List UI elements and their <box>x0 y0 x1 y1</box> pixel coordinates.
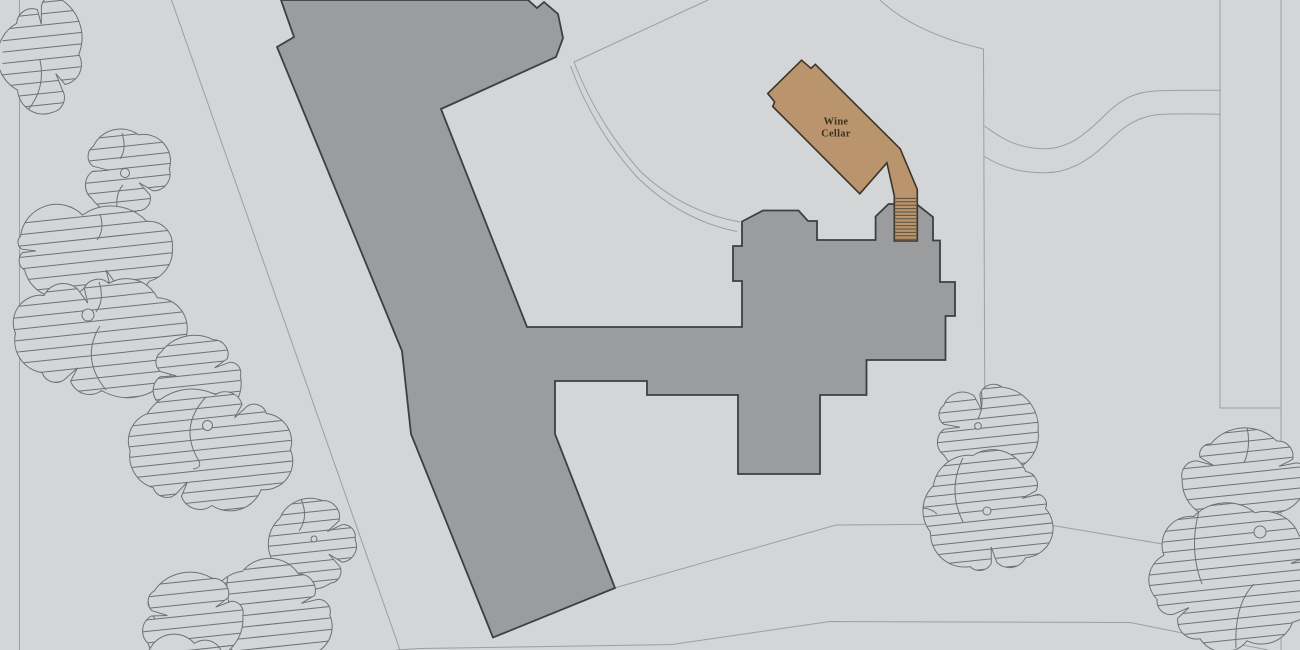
svg-text:Wine: Wine <box>824 117 849 128</box>
svg-text:Cellar: Cellar <box>821 129 851 140</box>
